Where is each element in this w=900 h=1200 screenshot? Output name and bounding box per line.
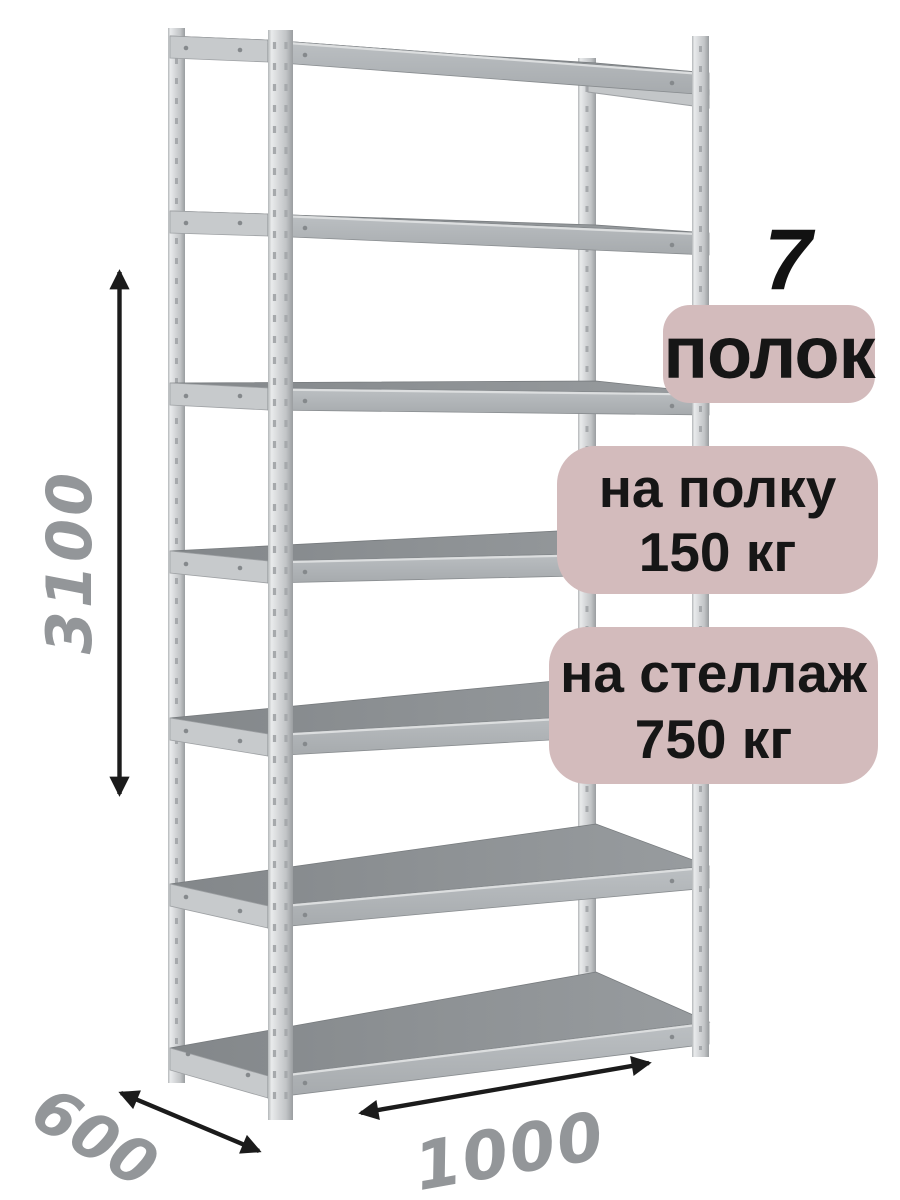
post-front-left bbox=[268, 30, 293, 1120]
shelf-7 bbox=[170, 972, 709, 1098]
shelf-count-label: полок bbox=[663, 311, 874, 394]
shelf-3 bbox=[170, 381, 709, 415]
per-rack-load-badge: на стеллаж 750 кг bbox=[549, 627, 878, 784]
shelf-1 bbox=[170, 36, 709, 95]
per-shelf-load-badge: на полку 150 кг bbox=[557, 446, 878, 594]
shelf-count-badge: полок bbox=[663, 305, 875, 403]
height-dimension-label: 3100 bbox=[28, 446, 112, 678]
per-rack-load-value: 750 кг bbox=[549, 706, 878, 772]
shelf-6 bbox=[170, 824, 709, 928]
per-shelf-load-value: 150 кг bbox=[557, 520, 878, 584]
shelf-count-number: 7 bbox=[728, 218, 848, 304]
product-image: 7 полок на полку 150 кг на стеллаж 750 к… bbox=[0, 0, 900, 1200]
shelf-2 bbox=[170, 211, 709, 255]
per-rack-load-text: на стеллаж bbox=[549, 640, 878, 706]
rack-illustration bbox=[0, 0, 900, 1200]
per-shelf-load-text: на полку bbox=[557, 456, 878, 520]
